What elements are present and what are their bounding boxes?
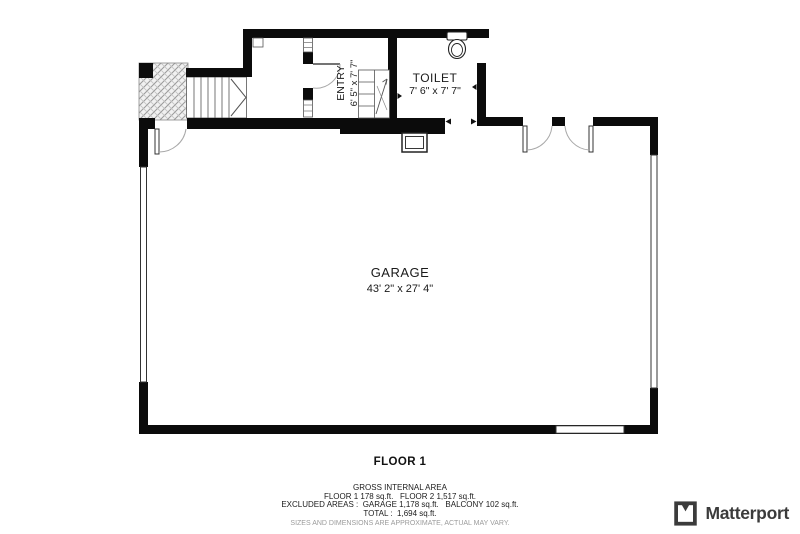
matterport-wordmark: Matterport	[705, 503, 789, 524]
porch-door-swing-arc	[159, 129, 186, 152]
matterport-brand: Matterport	[673, 501, 789, 526]
rear-window	[556, 426, 624, 433]
entry-partition-lower	[303, 88, 313, 100]
staircase-outline	[187, 77, 247, 118]
entry-partition-upper	[303, 52, 313, 64]
entry-room-dims: 6' 5" x 7' 7"	[349, 60, 360, 107]
garage-top-wall-main	[187, 118, 445, 129]
floorplan-page: ENTRY 6' 5" x 7' 7" TOILET 7' 6" x 7' 7"…	[0, 0, 800, 534]
french-door-right-leaf	[589, 126, 593, 152]
right-wall-top	[650, 117, 658, 155]
toilet-dim-tick	[472, 84, 477, 90]
garage-room-dims: 43' 2" x 27' 4"	[367, 283, 434, 295]
porch-door-leaf	[155, 129, 159, 154]
left-window	[141, 167, 147, 382]
opening-tick-right	[471, 119, 477, 125]
logo-m-fold	[681, 503, 690, 511]
entry-hall-left-wall	[243, 29, 252, 68]
porch-corner-wall	[139, 63, 153, 78]
door-jambs	[253, 38, 313, 117]
matterport-logo-icon	[673, 501, 698, 526]
toilet-room-dims: 7' 6" x 7' 7"	[409, 85, 461, 97]
entry-bottom-slab	[340, 129, 445, 134]
opening-tick-left	[446, 119, 452, 125]
entry-stair	[359, 70, 390, 118]
toilet-room-label: TOILET	[413, 71, 458, 85]
toilet-tank	[447, 32, 467, 40]
entry-door-jamb-top	[304, 38, 313, 52]
top-wall-jamb	[253, 38, 263, 47]
entry-door-jamb-bottom	[304, 100, 313, 117]
stairwell-top-wall	[186, 68, 252, 77]
floor-label: FLOOR 1	[0, 456, 800, 468]
french-door-left-leaf	[523, 126, 527, 152]
french-door-right-arc	[565, 126, 589, 150]
french-door-center-post	[552, 117, 565, 126]
french-door-left-arc	[527, 126, 552, 150]
toilet-fixture	[447, 32, 467, 59]
garage-top-wall-right-b	[593, 117, 658, 126]
toilet-right-wall	[477, 63, 486, 126]
utility-box	[402, 133, 427, 152]
entry-room-label: ENTRY	[335, 65, 347, 100]
toilet-bowl	[449, 40, 466, 59]
right-window	[651, 155, 657, 388]
garage-room-label: GARAGE	[371, 265, 430, 280]
left-wall-top	[139, 118, 148, 167]
entry-dim-tick	[398, 93, 403, 99]
floorplan-drawing: ENTRY 6' 5" x 7' 7" TOILET 7' 6" x 7' 7"…	[0, 0, 800, 460]
main-staircase	[187, 77, 247, 118]
